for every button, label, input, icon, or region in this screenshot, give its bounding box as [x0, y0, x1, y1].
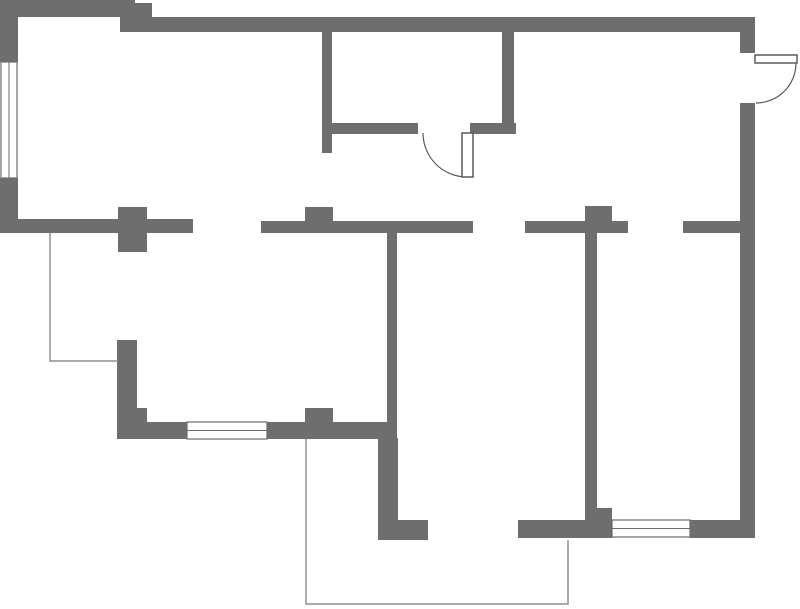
wall-left-upper [0, 0, 18, 62]
wall-bottomleft-vertical [117, 340, 137, 423]
wall-wc-south-left [322, 123, 418, 134]
door-interior-swing-arc [423, 133, 467, 177]
door-entry-leaf [755, 55, 797, 63]
wall-right-main [740, 103, 755, 538]
wall-mid-band-c [683, 221, 740, 233]
wall-south-band-2 [267, 422, 397, 439]
wall-mid-band-a [261, 221, 473, 233]
outline-open-area [50, 233, 118, 361]
wall-center-vertical [387, 223, 397, 422]
pillar-mid-b [585, 206, 612, 223]
door-entry-swing-arc [756, 63, 796, 103]
wall-bottomright-corner [585, 508, 612, 538]
door-interior-leaf [462, 133, 473, 177]
pillar-mid-a [305, 207, 333, 223]
floor-plan [0, 0, 800, 609]
wall-wc-left [322, 32, 332, 153]
wall-wc-right [502, 32, 514, 133]
wall-right-top [740, 17, 755, 53]
wall-bottomright-vertical [585, 223, 597, 508]
wall-south-band-4 [690, 520, 755, 538]
wall-lower-vertical [378, 438, 398, 540]
wall-top-left-exterior [0, 0, 135, 17]
wall-hall-south-band [0, 219, 193, 233]
wall-lower-foot [396, 520, 428, 540]
wall-south-band-1 [117, 422, 187, 439]
pillar-south [305, 408, 333, 422]
pillar-hall [118, 207, 147, 252]
wall-top-band [120, 17, 755, 32]
wall-bottomleft-step [137, 408, 147, 423]
floor-plan-page [0, 0, 800, 609]
wall-mid-band-b [525, 221, 628, 233]
